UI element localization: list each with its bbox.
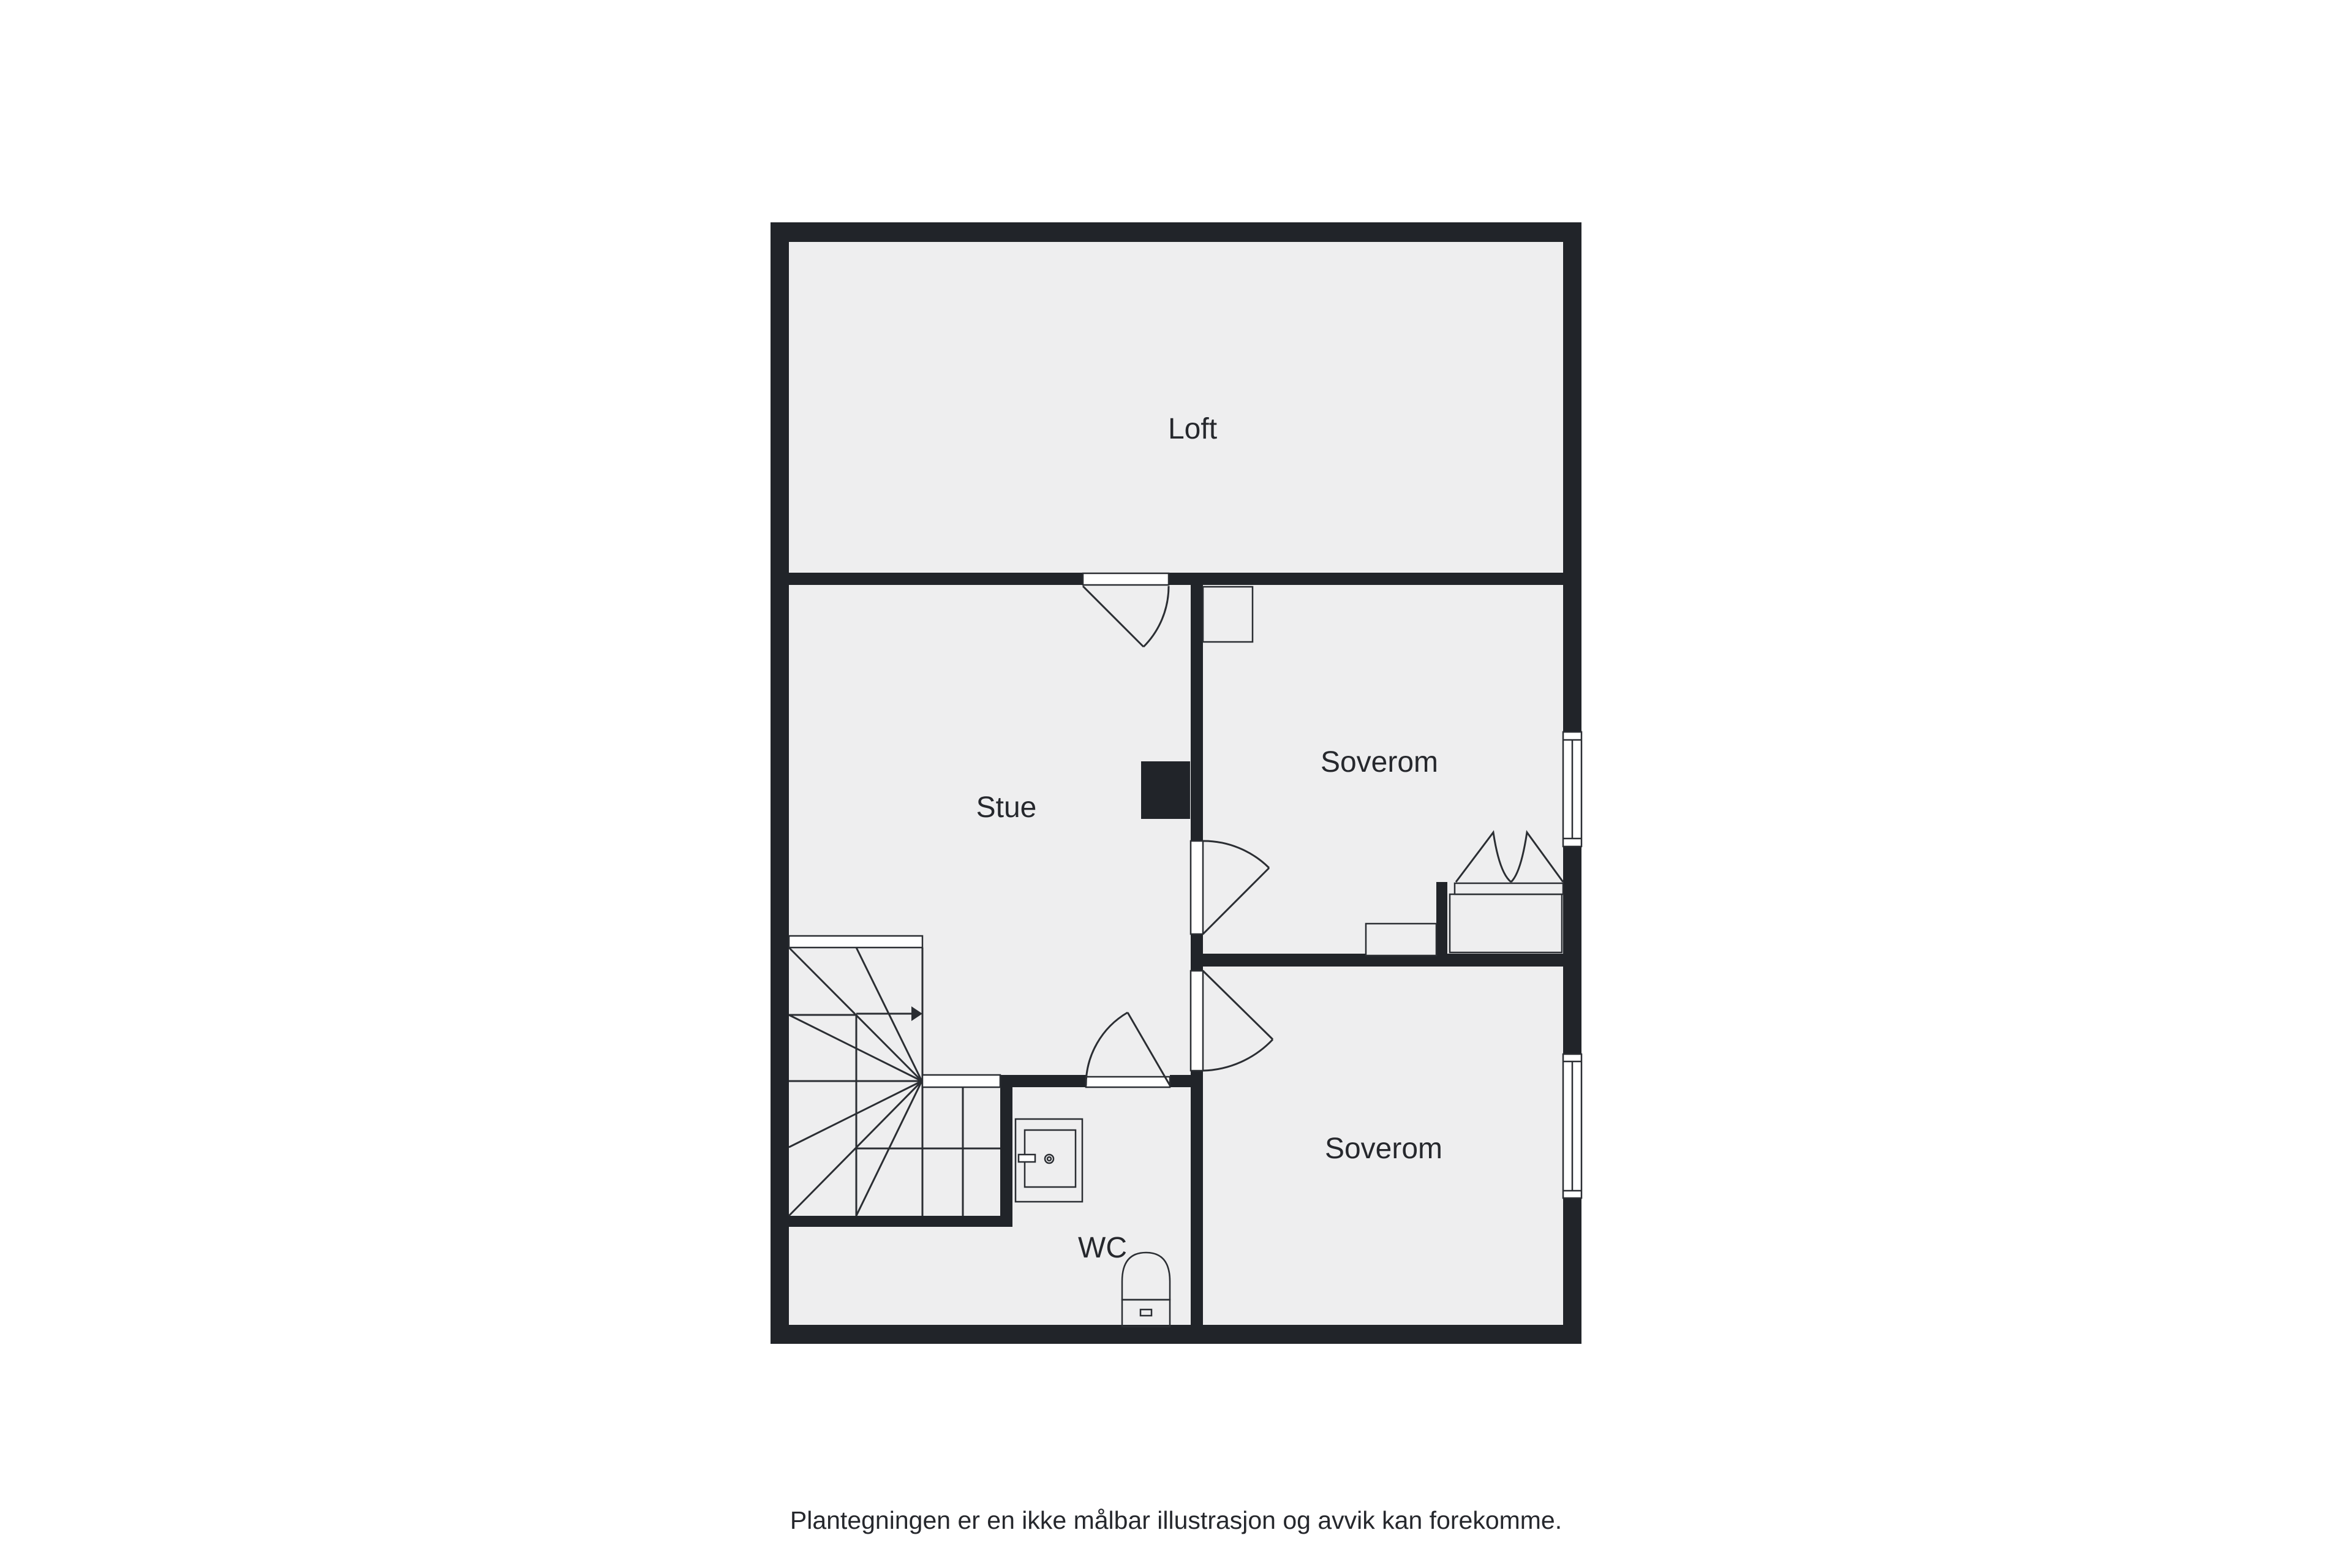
stair-top-landing <box>789 936 922 948</box>
stair-bottom-threshold <box>922 1075 1000 1087</box>
washbasin-tap <box>1019 1155 1035 1162</box>
interior-wall-vertical-lower <box>1191 1071 1203 1325</box>
room-label-loft: Loft <box>1168 413 1217 445</box>
bedroom1-door-jamb <box>1191 841 1203 934</box>
wc-wall-top-right-segment <box>1170 1075 1191 1087</box>
room-label-soverom-1: Soverom <box>1321 746 1438 778</box>
closet-side-cabinet <box>1366 924 1436 956</box>
room-label-wc: WC <box>1078 1232 1127 1264</box>
interior-wall-vertical-middle <box>1191 934 1203 971</box>
outer-wall-left <box>771 222 789 1344</box>
wc-door-threshold <box>1086 1077 1170 1087</box>
bedroom2-door-jamb <box>1191 971 1203 1071</box>
wc-wall-top-left-segment <box>1000 1075 1086 1087</box>
wc-wall-left <box>1000 1087 1012 1227</box>
room-label-stue: Stue <box>976 791 1037 824</box>
closet-stub-wall <box>1436 882 1447 967</box>
loft-wall-left-segment <box>789 573 1083 585</box>
closet-front-band <box>1455 883 1563 894</box>
stair-bottom-wall <box>771 1216 1012 1227</box>
room-label-soverom-2: Soverom <box>1325 1133 1442 1165</box>
disclaimer-text: Plantegningen er en ikke målbar illustra… <box>790 1506 1562 1534</box>
closet-body <box>1450 894 1562 952</box>
outer-wall-top <box>771 222 1581 242</box>
interior-wall-vertical-upper <box>1191 585 1203 841</box>
floor-plan: Loft Stue Soverom Soverom WC Plantegning… <box>0 0 2352 1568</box>
bedroom1-window <box>1563 732 1581 846</box>
loft-wall-right-segment <box>1169 573 1563 585</box>
chimney-block <box>1141 761 1190 819</box>
loft-door-threshold <box>1083 573 1169 585</box>
outer-wall-bottom <box>771 1325 1581 1344</box>
bedroom1-corner-door-leaf <box>1203 587 1253 642</box>
bedroom2-window <box>1563 1054 1581 1198</box>
